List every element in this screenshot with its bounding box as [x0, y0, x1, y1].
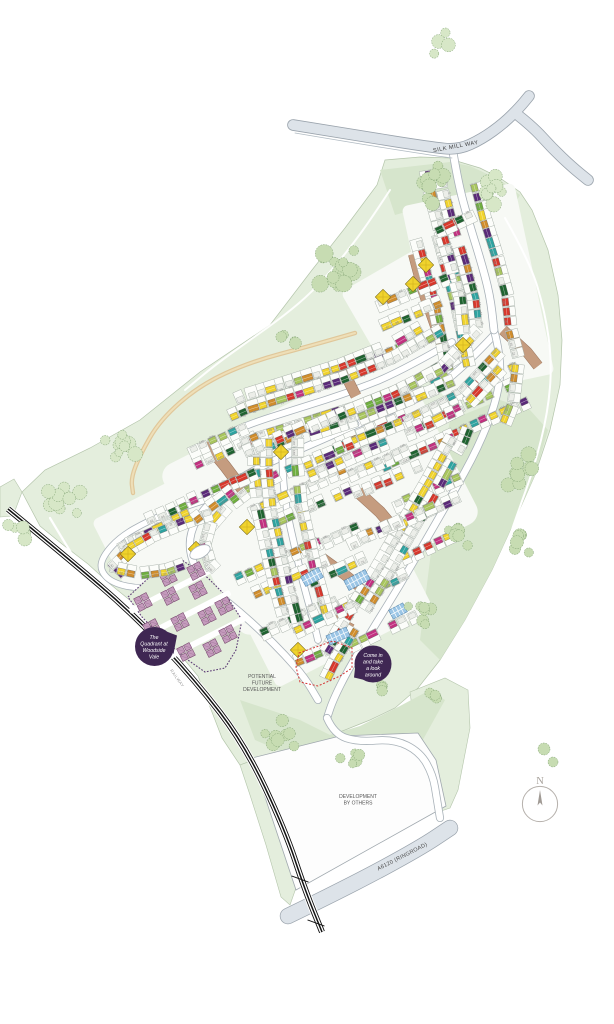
svg-text:and take: and take	[363, 660, 383, 666]
svg-text:208: 208	[258, 470, 263, 476]
svg-text:172: 172	[273, 490, 278, 496]
svg-text:a look: a look	[366, 666, 380, 672]
svg-text:Vale: Vale	[149, 655, 159, 661]
svg-text:113: 113	[466, 317, 471, 323]
svg-text:169: 169	[271, 460, 275, 465]
svg-text:188: 188	[292, 450, 296, 455]
svg-text:DEVELOPMENT: DEVELOPMENT	[339, 794, 377, 800]
svg-text:Come in: Come in	[363, 653, 382, 659]
svg-text:192: 192	[295, 497, 300, 503]
svg-text:DEVELOPMENT: DEVELOPMENT	[243, 687, 281, 693]
svg-text:BY OTHERS: BY OTHERS	[344, 801, 373, 807]
svg-text:POTENTIAL: POTENTIAL	[248, 674, 276, 680]
svg-text:N: N	[536, 776, 544, 787]
svg-text:Quadrant at: Quadrant at	[140, 642, 168, 648]
svg-text:Woodside: Woodside	[142, 648, 165, 654]
svg-text:around: around	[365, 673, 382, 679]
svg-text:FUTURE: FUTURE	[252, 681, 273, 687]
svg-text:187: 187	[292, 440, 296, 445]
svg-text:The: The	[150, 635, 159, 641]
svg-text:207: 207	[258, 459, 262, 464]
svg-text:170: 170	[271, 470, 276, 476]
svg-text:171: 171	[272, 480, 277, 486]
